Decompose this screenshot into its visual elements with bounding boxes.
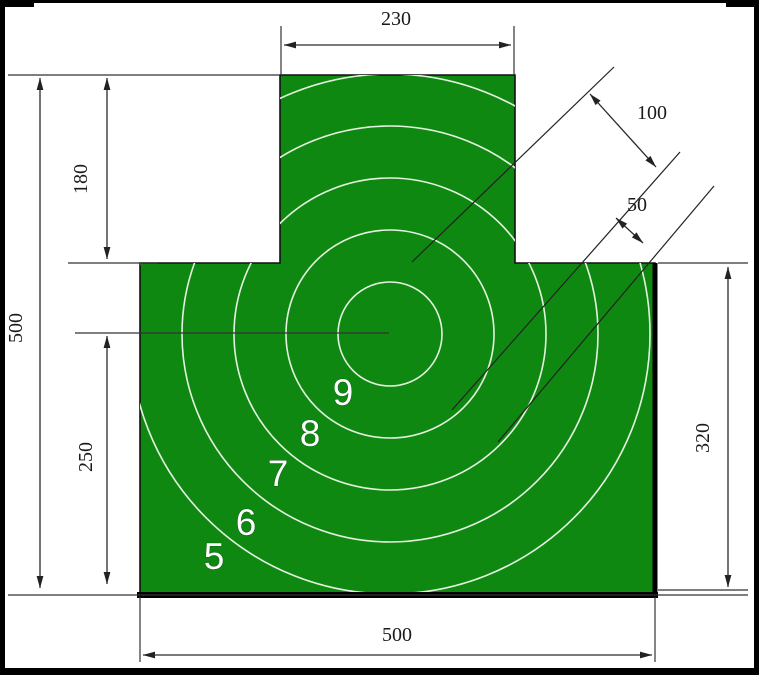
target-silhouette: 9 8 7 6 5 bbox=[130, 74, 658, 597]
dim-label-320: 320 bbox=[692, 423, 714, 453]
ring-number-8: 8 bbox=[300, 413, 321, 454]
dim-label-250: 250 bbox=[75, 442, 97, 472]
dim-line-50 bbox=[616, 218, 643, 243]
target-diagram: 9 8 7 6 5 230 500 bbox=[0, 0, 759, 675]
frame-right bbox=[754, 0, 759, 675]
ring-number-5: 5 bbox=[204, 536, 225, 577]
frame-bottom bbox=[0, 668, 759, 675]
dim-label-500-left: 500 bbox=[5, 313, 27, 343]
dim-label-100: 100 bbox=[637, 102, 667, 124]
target-body-shape bbox=[140, 75, 655, 593]
frame-left bbox=[0, 0, 5, 675]
dim-label-180: 180 bbox=[70, 164, 92, 194]
dim-label-50: 50 bbox=[627, 194, 647, 216]
dim-label-500-bottom: 500 bbox=[382, 624, 412, 646]
frame-top bbox=[0, 0, 759, 3]
frame-top-right-mark bbox=[726, 0, 759, 7]
dim-label-230: 230 bbox=[381, 8, 411, 30]
ring-number-6: 6 bbox=[236, 502, 257, 543]
target-drawing-canvas: 9 8 7 6 5 230 500 bbox=[0, 0, 759, 675]
ring-number-9: 9 bbox=[333, 372, 354, 413]
ring-number-7: 7 bbox=[268, 453, 289, 494]
frame-top-left-mark bbox=[0, 0, 34, 7]
